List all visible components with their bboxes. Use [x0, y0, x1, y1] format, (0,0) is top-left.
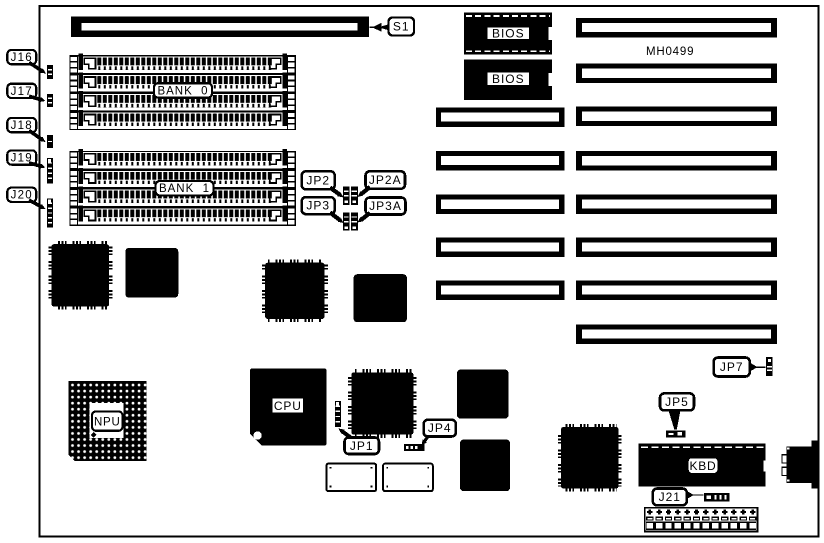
svg-text:MH0499: MH0499 — [646, 46, 694, 58]
svg-text:JP2: JP2 — [306, 173, 330, 187]
svg-text:CPU: CPU — [274, 399, 302, 413]
svg-text:BIOS: BIOS — [492, 72, 525, 86]
svg-text:BANK 1: BANK 1 — [159, 183, 210, 195]
svg-text:JP1: JP1 — [350, 439, 374, 453]
svg-text:NPU: NPU — [94, 417, 121, 429]
svg-text:S1: S1 — [393, 20, 410, 34]
svg-text:KBD: KBD — [689, 459, 716, 473]
svg-text:JP3A: JP3A — [369, 199, 402, 213]
svg-text:J21: J21 — [659, 490, 681, 504]
svg-text:JP4: JP4 — [428, 421, 452, 435]
svg-text:JP5: JP5 — [665, 395, 689, 409]
svg-text:JP7: JP7 — [720, 360, 744, 374]
svg-text:JP3: JP3 — [306, 199, 330, 213]
svg-text:JP2A: JP2A — [369, 173, 402, 187]
svg-text:BANK 0: BANK 0 — [157, 85, 208, 97]
svg-text:BIOS: BIOS — [492, 26, 525, 40]
